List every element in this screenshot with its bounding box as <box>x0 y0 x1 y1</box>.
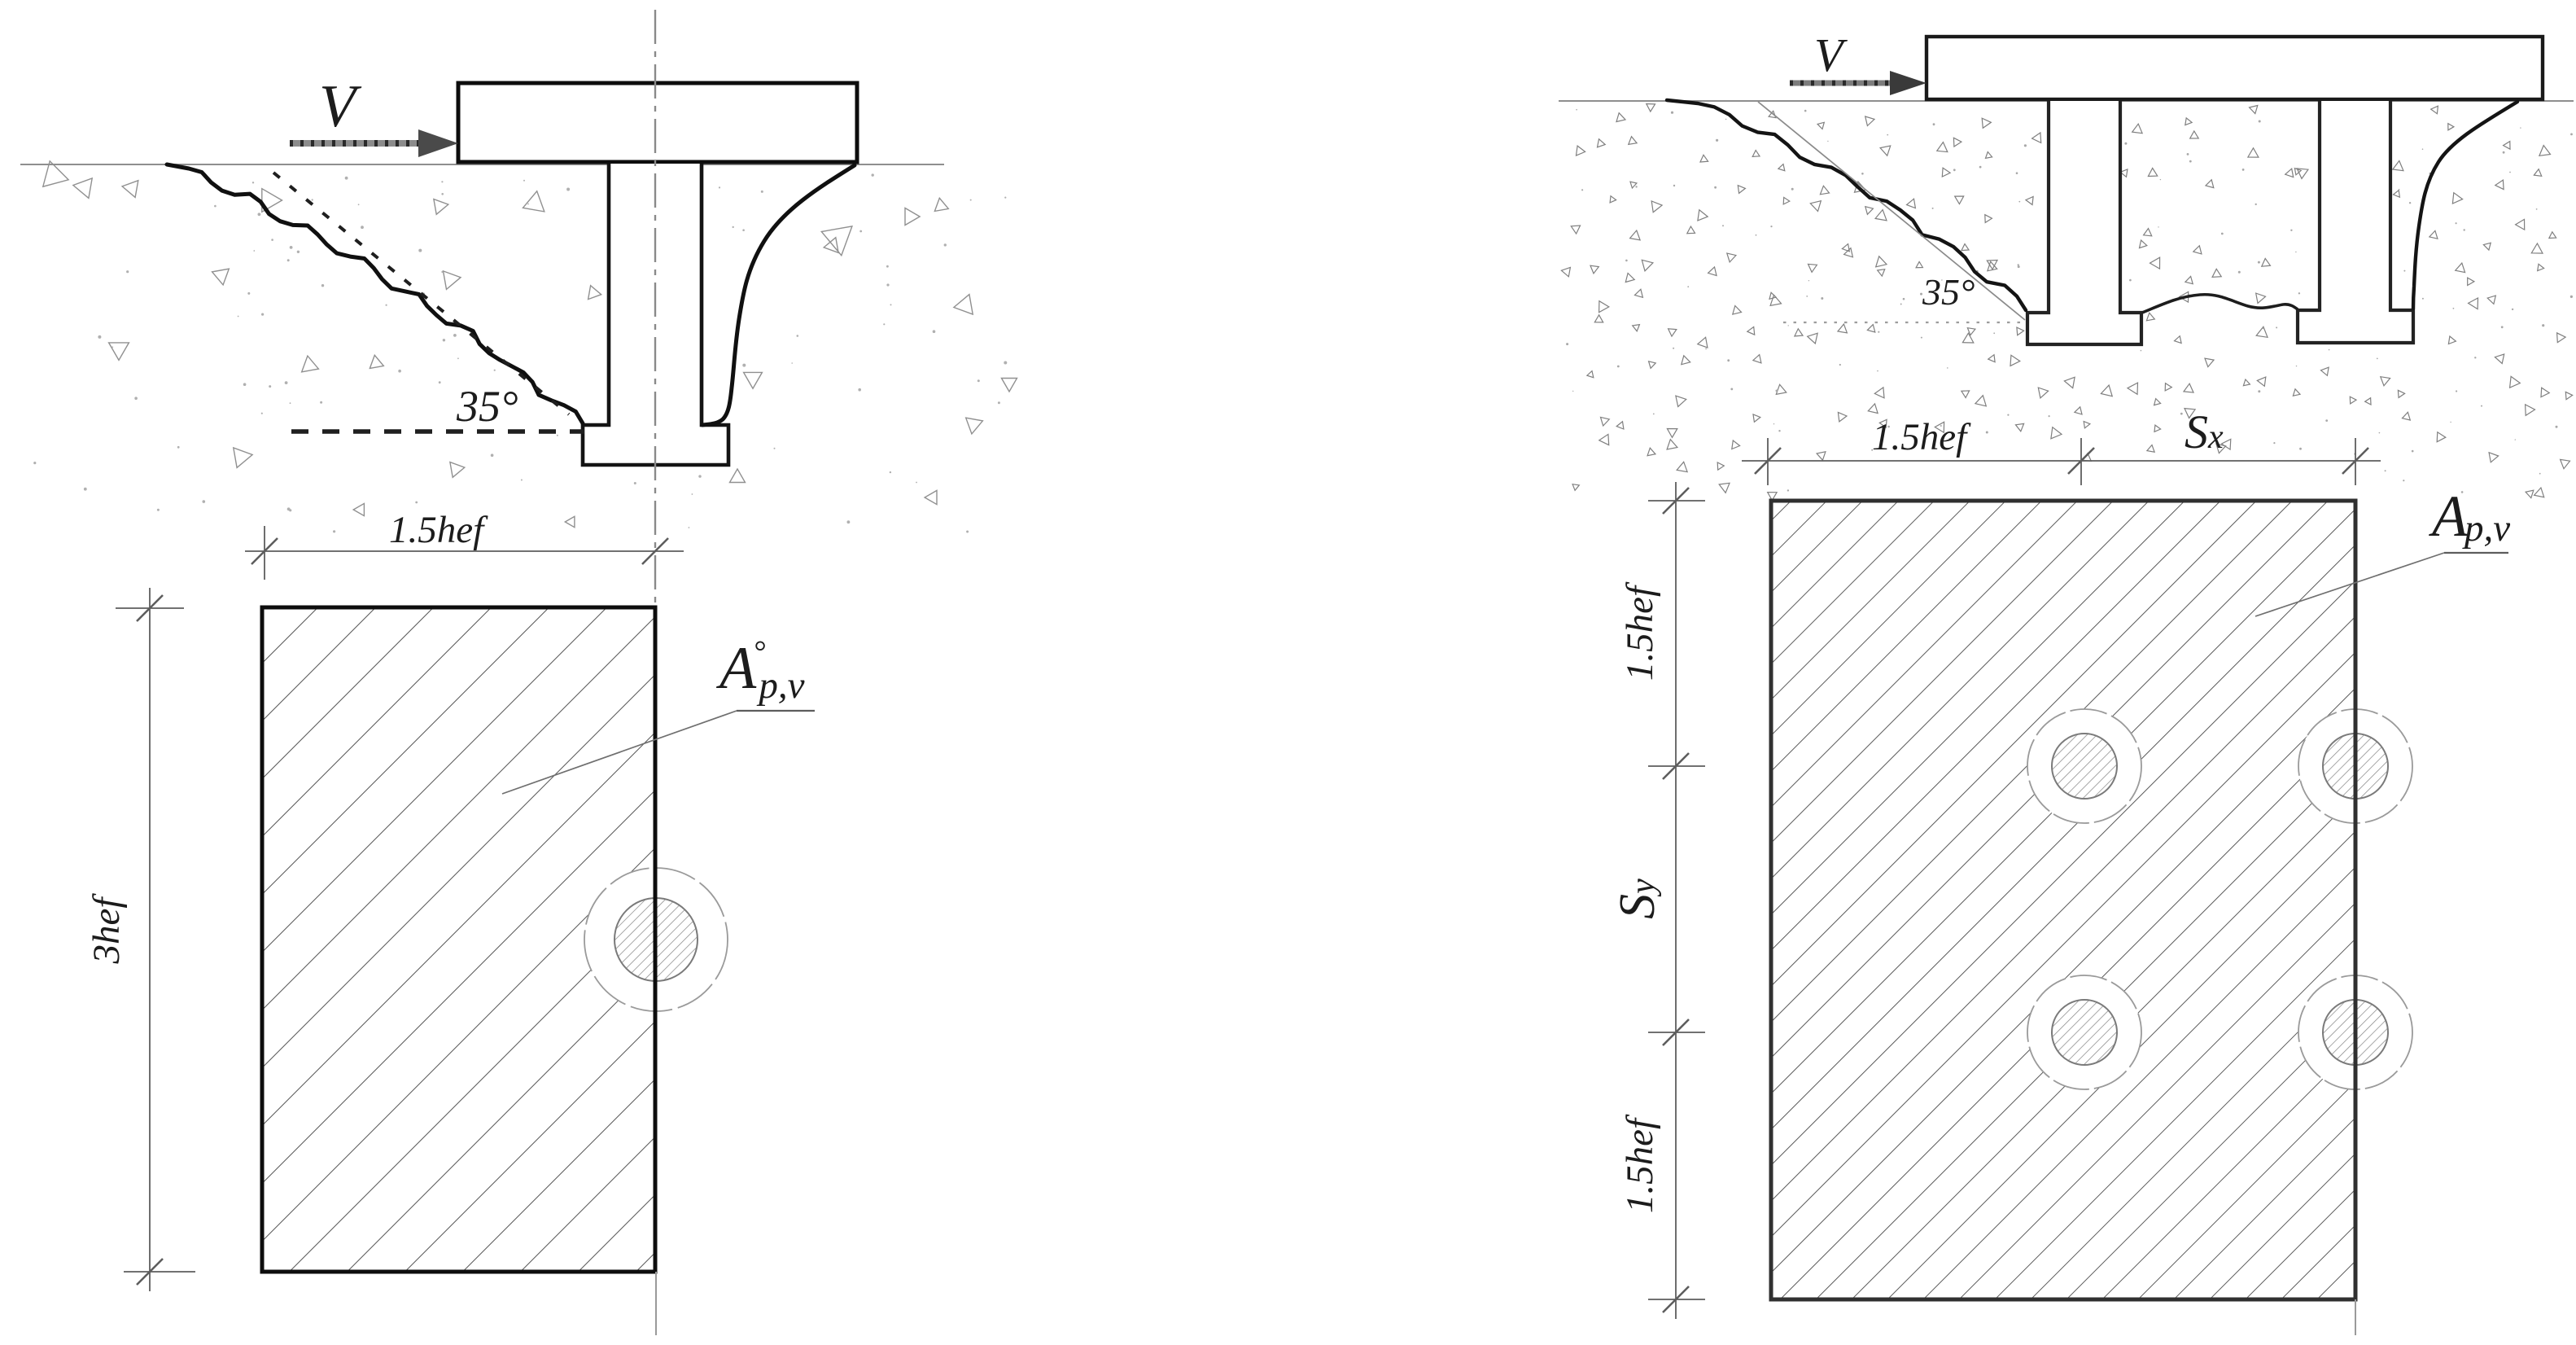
svg-text:35°: 35° <box>456 382 518 431</box>
svg-text:35°: 35° <box>1922 271 1975 313</box>
svg-text:1.5hef: 1.5hef <box>389 509 488 551</box>
svg-text:1.5hef: 1.5hef <box>1619 581 1661 681</box>
svg-text:1.5hef: 1.5hef <box>1619 1114 1661 1213</box>
svg-text:1.5hef: 1.5hef <box>1872 416 1971 458</box>
svg-text:3hef: 3hef <box>85 893 128 965</box>
svg-text:V: V <box>319 73 362 140</box>
